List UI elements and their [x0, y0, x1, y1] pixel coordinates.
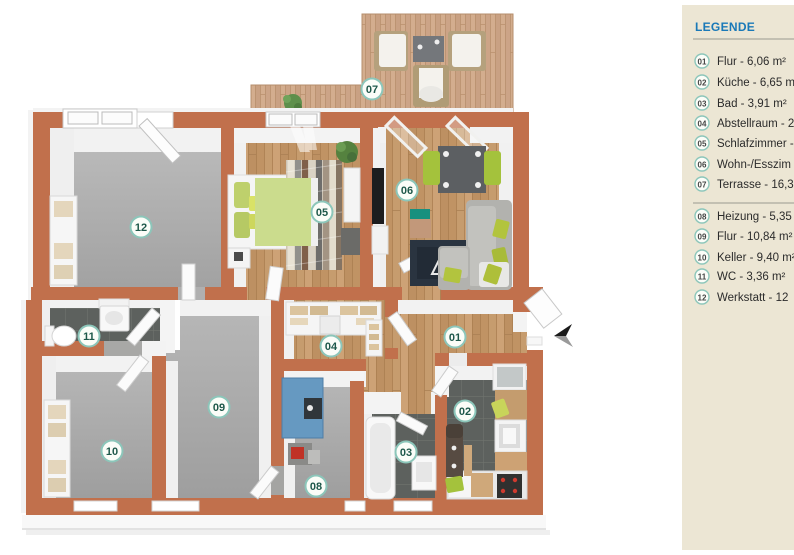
svg-text:09: 09 — [213, 402, 225, 414]
svg-text:Terrasse - 16,3: Terrasse - 16,3 — [717, 179, 794, 191]
svg-text:05: 05 — [698, 140, 707, 149]
svg-text:12: 12 — [135, 222, 147, 234]
svg-text:LEGENDE: LEGENDE — [695, 20, 755, 34]
svg-text:01: 01 — [698, 58, 707, 67]
svg-text:08: 08 — [698, 213, 707, 222]
svg-text:07: 07 — [698, 181, 707, 190]
svg-text:02: 02 — [459, 406, 471, 418]
svg-text:11: 11 — [698, 273, 707, 282]
svg-text:10: 10 — [106, 446, 118, 458]
svg-text:04: 04 — [325, 341, 338, 353]
svg-text:Wohn-/Esszim: Wohn-/Esszim — [717, 159, 791, 171]
svg-text:08: 08 — [310, 481, 322, 493]
svg-text:Flur - 6,06 m²: Flur - 6,06 m² — [717, 56, 786, 68]
svg-text:Heizung - 5,35: Heizung - 5,35 — [717, 211, 792, 223]
svg-text:07: 07 — [366, 84, 378, 96]
svg-text:01: 01 — [449, 332, 461, 344]
svg-text:09: 09 — [698, 233, 707, 242]
svg-text:05: 05 — [316, 207, 328, 219]
svg-text:04: 04 — [698, 120, 707, 129]
svg-text:Schlafzimmer -: Schlafzimmer - — [717, 138, 794, 150]
svg-text:Werkstatt - 12: Werkstatt - 12 — [717, 292, 788, 304]
svg-text:03: 03 — [698, 100, 707, 109]
svg-text:Keller - 9,40 m²: Keller - 9,40 m² — [717, 252, 794, 264]
svg-text:Flur - 10,84 m²: Flur - 10,84 m² — [717, 231, 793, 243]
svg-text:10: 10 — [698, 254, 707, 263]
svg-text:WC - 3,36 m²: WC - 3,36 m² — [717, 271, 786, 283]
svg-text:06: 06 — [698, 161, 707, 170]
svg-text:Küche - 6,65 m²: Küche - 6,65 m² — [717, 77, 794, 89]
svg-text:06: 06 — [401, 185, 413, 197]
svg-text:03: 03 — [400, 447, 412, 459]
svg-text:02: 02 — [698, 79, 707, 88]
svg-text:Abstellraum - 2: Abstellraum - 2 — [717, 118, 794, 130]
svg-text:Bad - 3,91 m²: Bad - 3,91 m² — [717, 98, 787, 110]
svg-text:12: 12 — [698, 294, 707, 303]
svg-text:11: 11 — [83, 331, 95, 343]
